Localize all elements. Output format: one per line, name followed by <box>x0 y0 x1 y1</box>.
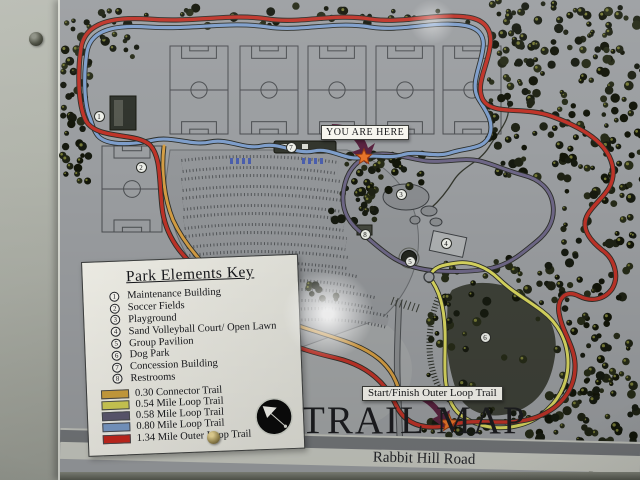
element-label: Playground <box>128 312 177 325</box>
tree-highlight <box>590 78 592 80</box>
tree-highlight <box>553 126 555 128</box>
tree <box>428 336 435 343</box>
tree-highlight <box>500 31 503 34</box>
tree <box>545 391 554 400</box>
tree <box>566 320 572 326</box>
tree-highlight <box>365 208 367 210</box>
tree-highlight <box>605 8 608 11</box>
tree-highlight <box>428 319 431 322</box>
tree <box>593 54 598 59</box>
tree-highlight <box>113 32 115 34</box>
tree <box>548 61 556 69</box>
tree <box>594 395 599 400</box>
tree <box>385 186 393 194</box>
tree <box>575 37 583 45</box>
tree-highlight <box>62 47 65 50</box>
tree <box>521 156 526 161</box>
tree <box>590 30 595 35</box>
tree <box>560 423 565 428</box>
tree <box>565 297 570 302</box>
tree <box>472 317 481 326</box>
tree-highlight <box>610 138 613 141</box>
tree <box>60 69 66 75</box>
tree <box>518 81 523 86</box>
tree <box>63 171 68 176</box>
tree-highlight <box>427 374 429 376</box>
tree <box>511 123 520 132</box>
tree-highlight <box>626 376 628 378</box>
tree <box>448 343 456 351</box>
tree-highlight <box>574 9 576 11</box>
map-marker-6: 6 <box>480 332 491 343</box>
tree <box>605 28 613 36</box>
tree <box>545 262 553 270</box>
tree <box>580 387 588 395</box>
tree <box>629 431 638 440</box>
tree <box>446 302 451 307</box>
tree <box>551 39 557 45</box>
loop-trail-080-casing <box>85 24 491 158</box>
tree-highlight <box>616 429 619 432</box>
tree <box>620 114 628 122</box>
tree <box>579 46 586 53</box>
tree <box>565 189 570 194</box>
tree <box>110 45 117 52</box>
tree-highlight <box>578 278 580 280</box>
accessible-parking-spot <box>302 158 305 164</box>
tree <box>593 386 600 393</box>
tree <box>625 339 633 347</box>
tree <box>609 368 616 375</box>
tree-highlight <box>564 223 566 225</box>
tree-highlight <box>578 9 581 12</box>
tree <box>564 31 568 35</box>
tree-highlight <box>628 215 630 217</box>
tree <box>582 59 591 68</box>
tree <box>556 281 563 288</box>
tree-highlight <box>521 34 524 37</box>
tree <box>98 9 105 16</box>
tree-highlight <box>541 72 543 74</box>
tree <box>622 358 630 366</box>
tree-highlight <box>392 10 394 12</box>
tree <box>628 110 634 116</box>
tree <box>625 375 631 381</box>
tree-highlight <box>598 68 601 71</box>
tree <box>554 24 563 33</box>
tree <box>376 168 381 173</box>
tree-highlight <box>504 75 506 77</box>
tree <box>551 5 557 11</box>
tree-highlight <box>617 162 619 164</box>
tree-highlight <box>615 232 617 234</box>
tree <box>64 20 69 25</box>
tree <box>356 169 364 177</box>
tree <box>514 134 519 139</box>
element-number: 6 <box>111 350 121 360</box>
tree-highlight <box>533 132 535 134</box>
tree-highlight <box>65 132 67 134</box>
tree <box>611 93 620 102</box>
tree-highlight <box>60 153 63 156</box>
tree <box>536 317 541 322</box>
tree-highlight <box>518 10 520 12</box>
tree <box>565 157 571 163</box>
tree <box>470 280 476 286</box>
tree-highlight <box>578 122 581 125</box>
element-number: 2 <box>110 303 120 313</box>
tree <box>503 47 510 54</box>
tree-highlight <box>635 130 638 133</box>
play-equipment <box>410 216 420 224</box>
tree-highlight <box>629 111 631 113</box>
tree-highlight <box>488 78 490 80</box>
tree-highlight <box>507 10 509 12</box>
tree <box>84 178 91 185</box>
tree-highlight <box>626 162 629 165</box>
tree <box>391 168 399 176</box>
tree <box>577 276 583 282</box>
tree <box>532 89 541 98</box>
tree <box>587 391 593 397</box>
tree <box>462 331 467 336</box>
tree <box>627 214 634 221</box>
element-label: Restrooms <box>130 371 175 384</box>
tree-highlight <box>557 143 560 146</box>
tree <box>603 47 609 53</box>
tree-highlight <box>61 70 63 72</box>
tree-highlight <box>504 173 506 175</box>
tree <box>130 54 135 59</box>
tree-highlight <box>64 172 66 174</box>
tree <box>568 111 575 118</box>
tree <box>101 35 105 39</box>
map-marker-4: 4 <box>441 238 452 249</box>
tree <box>608 377 614 383</box>
tree-highlight <box>72 69 74 71</box>
tree <box>522 88 529 95</box>
tree <box>78 142 87 151</box>
tree <box>626 241 634 249</box>
tree <box>626 193 636 203</box>
tree-highlight <box>525 286 528 289</box>
tree-highlight <box>561 424 563 426</box>
tree-highlight <box>62 106 64 108</box>
tree-highlight <box>620 372 622 374</box>
maintenance-building-roof <box>114 100 123 126</box>
accessible-parking-spot <box>236 158 239 164</box>
trail-color-swatch <box>102 423 130 433</box>
tree-highlight <box>521 357 524 360</box>
tree <box>602 362 609 369</box>
tree-highlight <box>562 240 564 242</box>
you-are-here-label: YOU ARE HERE <box>321 125 409 140</box>
tree-highlight <box>145 14 147 16</box>
tree-highlight <box>630 383 633 386</box>
tree <box>599 278 605 284</box>
tree-highlight <box>365 180 367 182</box>
tree <box>405 182 413 190</box>
tree <box>519 355 527 363</box>
tree-highlight <box>556 275 558 277</box>
tree <box>572 400 580 408</box>
tree <box>468 291 474 297</box>
tree-highlight <box>567 321 569 323</box>
tree <box>483 273 489 279</box>
tree-highlight <box>181 13 183 15</box>
tree-highlight <box>65 21 67 23</box>
tree-highlight <box>446 295 449 298</box>
tree <box>577 7 586 16</box>
tree-highlight <box>626 82 629 85</box>
tree-highlight <box>558 107 560 109</box>
tree <box>561 239 567 245</box>
park-elements-list: 1Maintenance Building2Soccer Fields3Play… <box>83 284 301 387</box>
tree <box>552 125 558 131</box>
tree-highlight <box>606 415 608 417</box>
tree <box>611 107 619 115</box>
tree <box>586 343 591 348</box>
tree <box>340 7 348 15</box>
tree <box>571 160 578 167</box>
tree-highlight <box>535 18 538 21</box>
tree-highlight <box>592 336 595 339</box>
tree-highlight <box>568 13 570 15</box>
tree-highlight <box>583 314 585 316</box>
tree-highlight <box>513 38 515 40</box>
tree <box>71 27 76 32</box>
tree-highlight <box>604 178 607 181</box>
tree-highlight <box>515 135 517 137</box>
tree-highlight <box>577 438 579 440</box>
tree <box>551 413 559 421</box>
tree <box>554 346 562 354</box>
accessible-parking-spot <box>242 158 245 164</box>
tree-highlight <box>357 170 360 173</box>
roof-vent <box>302 144 308 149</box>
tree-highlight <box>568 147 570 149</box>
tree <box>184 8 189 13</box>
map-marker-3: 3 <box>396 189 407 200</box>
tree <box>567 45 573 51</box>
tree-highlight <box>506 137 508 139</box>
tree <box>566 12 573 19</box>
tree <box>597 355 605 363</box>
tree-highlight <box>493 115 496 118</box>
map-sign-panel: YOU ARE HERE Start/Finish Outer Loop Tra… <box>58 0 640 480</box>
tree-highlight <box>399 165 401 167</box>
tree <box>357 187 366 196</box>
tree-highlight <box>615 119 617 121</box>
tree <box>134 45 139 50</box>
tree <box>571 58 580 67</box>
tree-highlight <box>518 272 520 274</box>
tree-highlight <box>75 172 77 174</box>
tree <box>624 161 633 170</box>
start-finish-label: Start/Finish Outer Loop Trail <box>362 386 503 401</box>
tree <box>435 9 440 14</box>
tree-highlight <box>80 143 83 146</box>
trail-color-swatch <box>103 434 131 444</box>
tree <box>67 163 74 170</box>
soccer-field <box>308 46 366 134</box>
tree-highlight <box>393 170 396 173</box>
tree <box>328 208 335 215</box>
tree-highlight <box>607 30 610 33</box>
tree <box>616 237 625 246</box>
tree <box>418 171 424 177</box>
tree <box>556 16 563 23</box>
tree-highlight <box>580 47 583 50</box>
trail-junction <box>424 272 434 282</box>
tree <box>600 343 609 352</box>
tree <box>627 390 636 399</box>
tree-highlight <box>359 189 362 192</box>
tree-highlight <box>603 364 605 366</box>
tree <box>592 324 599 331</box>
tree <box>616 45 624 53</box>
tree-highlight <box>447 303 449 305</box>
tree-highlight <box>611 391 613 393</box>
tree <box>369 206 374 211</box>
tree <box>368 188 376 196</box>
tree <box>494 142 502 150</box>
tree-highlight <box>555 347 558 350</box>
map-marker-2: 2 <box>136 162 147 173</box>
tree-highlight <box>603 34 605 36</box>
element-number: 4 <box>111 327 121 337</box>
tree <box>539 122 547 130</box>
tree <box>64 131 69 136</box>
tree <box>626 263 633 270</box>
tree-highlight <box>366 198 369 201</box>
tree <box>521 145 527 151</box>
tree <box>536 281 542 287</box>
soccer-field <box>376 46 434 134</box>
tree-highlight <box>553 162 555 164</box>
tree-highlight <box>609 378 611 380</box>
tree <box>614 11 623 20</box>
tree-highlight <box>617 238 620 241</box>
tree <box>446 317 453 324</box>
tree-highlight <box>474 319 477 322</box>
tree-highlight <box>591 397 594 400</box>
screw-icon <box>207 431 220 444</box>
tree <box>482 297 491 306</box>
tree-highlight <box>557 18 560 21</box>
tree-highlight <box>554 431 556 433</box>
tree <box>626 182 632 188</box>
tree <box>512 37 517 42</box>
tree <box>548 131 555 138</box>
tree <box>62 143 69 150</box>
tree <box>507 101 513 107</box>
tree <box>124 34 130 40</box>
tree <box>590 166 595 171</box>
tree <box>602 112 607 117</box>
tree-highlight <box>581 75 583 77</box>
tree <box>324 6 329 11</box>
tree <box>562 305 569 312</box>
trail-map-sign-photo: YOU ARE HERE Start/Finish Outer Loop Tra… <box>0 0 640 480</box>
tree <box>435 331 440 336</box>
tree-highlight <box>591 30 593 32</box>
tree-highlight <box>508 84 511 87</box>
tree <box>547 281 556 290</box>
tree <box>79 126 85 132</box>
tree <box>552 160 559 167</box>
tree <box>523 285 532 294</box>
tree <box>372 217 378 223</box>
tree-highlight <box>552 6 554 8</box>
tree <box>426 373 430 377</box>
tree-highlight <box>534 174 537 177</box>
tree-highlight <box>538 272 540 274</box>
tree-highlight <box>579 165 581 167</box>
tree <box>62 155 70 163</box>
tree-highlight <box>540 301 542 303</box>
tree-highlight <box>463 332 465 334</box>
park-elements-key-panel: Park Elements Key 1Maintenance Building2… <box>81 254 305 457</box>
tree-highlight <box>434 316 436 318</box>
play-equipment <box>430 218 442 226</box>
tree-highlight <box>592 289 594 291</box>
trail-color-swatch <box>101 389 129 399</box>
tree <box>615 333 620 338</box>
tree <box>84 19 90 25</box>
tree <box>463 346 469 352</box>
tree <box>124 48 129 53</box>
tree <box>629 152 635 158</box>
tree <box>489 98 494 103</box>
map-marker-7: 7 <box>286 142 297 153</box>
tree <box>567 282 573 288</box>
tree <box>619 184 626 191</box>
tree-highlight <box>587 22 589 24</box>
tree <box>363 179 370 186</box>
tree <box>603 313 612 322</box>
tree <box>480 309 489 318</box>
tree-highlight <box>352 179 354 181</box>
element-number: 3 <box>110 315 120 325</box>
tree <box>562 206 567 211</box>
tree-highlight <box>617 47 620 50</box>
tree-highlight <box>62 64 64 66</box>
tree-highlight <box>608 84 610 86</box>
play-equipment <box>421 206 437 216</box>
tree-highlight <box>116 9 118 11</box>
tree <box>501 354 507 360</box>
tree <box>550 46 559 55</box>
tree <box>573 134 579 140</box>
accessible-parking-spot <box>320 158 323 164</box>
tree <box>305 285 312 292</box>
tree <box>514 27 521 34</box>
tree <box>378 174 384 180</box>
tree-highlight <box>622 98 624 100</box>
tree <box>584 165 591 172</box>
tree-highlight <box>581 389 584 392</box>
tree-highlight <box>561 373 564 376</box>
tree <box>578 164 583 169</box>
tree <box>537 271 542 276</box>
tree-highlight <box>602 344 605 347</box>
tree <box>561 249 569 257</box>
tree <box>71 69 76 74</box>
tree <box>634 63 640 69</box>
tree-highlight <box>504 48 506 50</box>
tree <box>594 46 601 53</box>
